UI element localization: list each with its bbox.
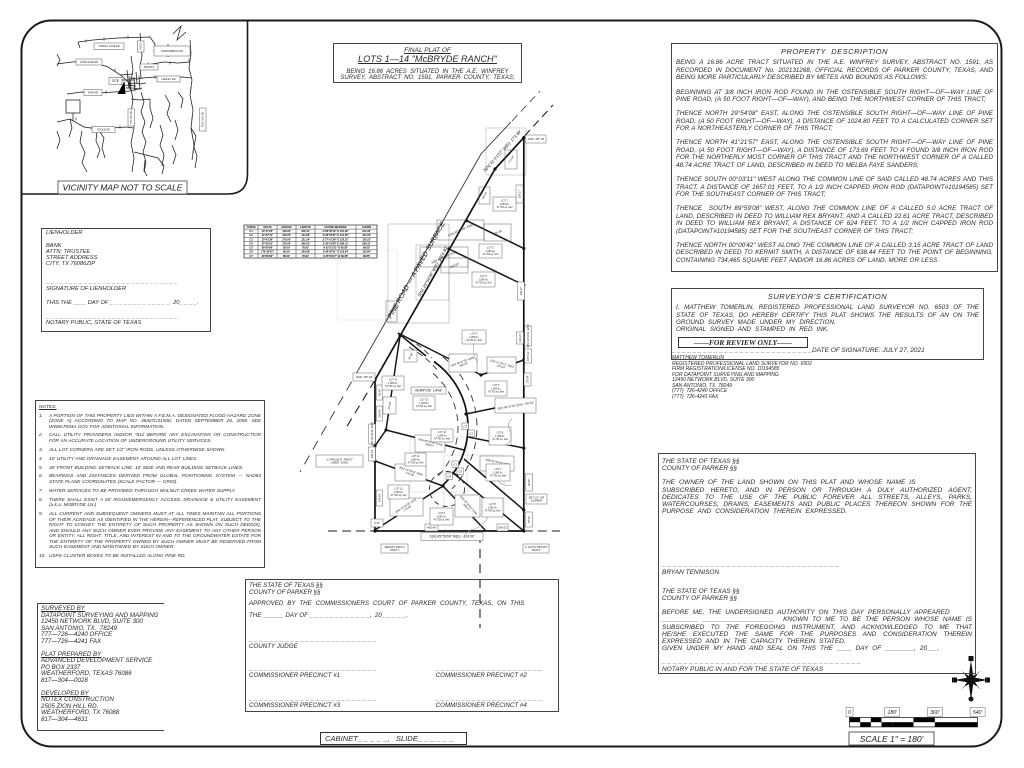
svg-text:C2: C2 bbox=[469, 431, 473, 435]
svg-text:435.48': 435.48' bbox=[427, 526, 437, 530]
svg-text:638.44': 638.44' bbox=[370, 449, 374, 458]
svg-text:FM(HWY): FM(HWY) bbox=[144, 66, 155, 69]
svg-text:47,703 sq. feet: 47,703 sq. feet bbox=[385, 385, 401, 388]
svg-text:0: 0 bbox=[848, 710, 851, 716]
svg-text:47,703 sq. feet: 47,703 sq. feet bbox=[485, 510, 501, 513]
svg-text:136.34': 136.34' bbox=[518, 333, 522, 342]
svg-text:TRACT: TRACT bbox=[390, 548, 400, 552]
svg-text:CHORD BEARING: CHORD BEARING bbox=[324, 225, 346, 229]
svg-text:21°07'31": 21°07'31" bbox=[261, 233, 274, 237]
svg-text:47,703 sq. feet: 47,703 sq. feet bbox=[466, 339, 482, 342]
svg-text:FND. 3/8" IR: FND. 3/8" IR bbox=[356, 375, 372, 379]
svg-text:540': 540' bbox=[973, 710, 983, 716]
svg-text:5.47': 5.47' bbox=[374, 521, 380, 525]
svg-text:165.17': 165.17' bbox=[517, 189, 521, 198]
svg-text:S(N) 49°47'26" E(W): S(N) 49°47'26" E(W) bbox=[447, 223, 474, 238]
svg-text:DELTA: DELTA bbox=[263, 225, 271, 229]
svg-text:26.84': 26.84' bbox=[377, 389, 381, 397]
svg-text:S(N) 89°59'08" W(E) 624.00': S(N) 89°59'08" W(E) 624.00' bbox=[430, 535, 475, 539]
svg-text:DIAMONDBACK RD: DIAMONDBACK RD bbox=[161, 50, 183, 53]
svg-text:HOGLE RD: HOGLE RD bbox=[97, 128, 110, 131]
svg-text:47,703 sq. feet: 47,703 sq. feet bbox=[416, 405, 432, 408]
svg-text:269.33': 269.33' bbox=[300, 242, 310, 246]
svg-text:S 36°14'55" E 258.31': S 36°14'55" E 258.31' bbox=[323, 242, 349, 246]
svg-text:69.55': 69.55' bbox=[363, 246, 370, 250]
svg-text:TRACT: TRACT bbox=[532, 548, 541, 552]
svg-text:47,703 sq. feet: 47,703 sq. feet bbox=[488, 391, 504, 394]
svg-text:270.00': 270.00' bbox=[281, 242, 291, 246]
svg-text:47,703 sq. feet: 47,703 sq. feet bbox=[492, 438, 508, 441]
svg-text:47,703 sq. feet: 47,703 sq. feet bbox=[434, 519, 450, 522]
svg-text:330.00': 330.00' bbox=[282, 233, 291, 237]
svg-text:134.64': 134.64' bbox=[377, 493, 381, 502]
svg-text:C3: C3 bbox=[249, 237, 253, 241]
svg-text:S 45°42'41" E 119.94': S 45°42'41" E 119.94' bbox=[323, 250, 349, 254]
svg-text:C1: C1 bbox=[249, 229, 253, 233]
svg-text:C1: C1 bbox=[453, 462, 457, 466]
svg-text:58.80': 58.80' bbox=[527, 516, 531, 523]
svg-text:TIN TOP RD: TIN TOP RD bbox=[131, 111, 133, 124]
svg-text:60.00': 60.00' bbox=[283, 250, 290, 254]
svg-text:McBRYDE LANE: McBRYDE LANE bbox=[415, 389, 443, 393]
svg-text:57°09'23": 57°09'23" bbox=[262, 242, 274, 246]
svg-text:SCALE 1" = 180': SCALE 1" = 180' bbox=[860, 734, 924, 744]
svg-text:99.98': 99.98' bbox=[527, 479, 531, 486]
svg-text:121.68': 121.68' bbox=[301, 233, 310, 237]
svg-text:C2: C2 bbox=[249, 233, 253, 237]
svg-text:VEAL HILL RD: VEAL HILL RD bbox=[201, 112, 204, 128]
svg-text:50.00': 50.00' bbox=[283, 254, 290, 258]
svg-text:226.31': 226.31' bbox=[300, 229, 310, 233]
svg-text:176°18'51": 176°18'51" bbox=[261, 250, 275, 254]
svg-text:47,703 sq. feet: 47,703 sq. feet bbox=[476, 282, 492, 285]
svg-text:C5: C5 bbox=[249, 246, 253, 250]
svg-text:50.00': 50.00' bbox=[283, 246, 290, 250]
svg-text:119.94': 119.94' bbox=[362, 250, 371, 254]
svg-text:LONE STAR RD: LONE STAR RD bbox=[80, 61, 98, 64]
svg-text:25°43'38": 25°43'38" bbox=[261, 237, 274, 241]
svg-text:69.55': 69.55' bbox=[363, 254, 370, 258]
svg-text:FND. 3/8" IR: FND. 3/8" IR bbox=[528, 137, 544, 141]
svg-text:47,703 sq. feet: 47,703 sq. feet bbox=[391, 494, 407, 497]
svg-text:76.92': 76.92' bbox=[302, 246, 309, 250]
svg-text:C6: C6 bbox=[249, 250, 253, 254]
svg-text:184.66': 184.66' bbox=[301, 250, 310, 254]
svg-text:188.52': 188.52' bbox=[498, 526, 508, 530]
svg-text:PINE RD: PINE RD bbox=[88, 91, 98, 94]
svg-text:76.92': 76.92' bbox=[302, 254, 309, 258]
svg-text:359.62': 359.62' bbox=[449, 262, 460, 270]
svg-text:10194585: 10194585 bbox=[531, 498, 543, 502]
svg-text:C3: C3 bbox=[463, 424, 467, 428]
svg-text:LEMLEY RD: LEMLEY RD bbox=[161, 78, 175, 81]
svg-text:221.90': 221.90' bbox=[361, 229, 371, 233]
svg-text:TURKEY LAKE RD: TURKEY LAKE RD bbox=[98, 45, 120, 48]
svg-text:88°08'09": 88°08'09" bbox=[262, 246, 274, 250]
svg-text:258.31': 258.31' bbox=[361, 242, 371, 246]
svg-text:S(N) 00°00'42" E(W): S(N) 00°00'42" E(W) bbox=[370, 422, 374, 446]
svg-text:81.08': 81.08' bbox=[407, 351, 414, 359]
svg-text:CHORD: CHORD bbox=[362, 225, 372, 229]
svg-text:S(N) 00°03'11" E(W): S(N) 00°03'11" E(W) bbox=[526, 324, 530, 348]
svg-text:SITE: SITE bbox=[112, 79, 120, 83]
svg-text:S 77°41'26" E 120.22': S 77°41'26" E 120.22' bbox=[323, 237, 349, 241]
svg-text:47,703 sq. feet: 47,703 sq. feet bbox=[490, 475, 506, 478]
svg-text:C5: C5 bbox=[458, 469, 462, 473]
svg-text:330.00': 330.00' bbox=[282, 229, 291, 233]
svg-text:C4: C4 bbox=[447, 474, 451, 478]
svg-text:N 39°15'51" E 121.00': N 39°15'51" E 121.00' bbox=[323, 233, 349, 237]
svg-text:39°17'25": 39°17'25" bbox=[262, 229, 274, 233]
svg-text:47,703 sq. feet: 47,703 sq. feet bbox=[483, 253, 499, 256]
svg-text:(ABST. 1591): (ABST. 1591) bbox=[331, 461, 348, 465]
svg-text:319.80': 319.80' bbox=[377, 409, 381, 418]
svg-text:47,703 sq. feet: 47,703 sq. feet bbox=[434, 438, 450, 441]
svg-text:N 69°28'19" E 221.90': N 69°28'19" E 221.90' bbox=[323, 229, 349, 233]
svg-text:180': 180' bbox=[888, 710, 898, 716]
svg-text:C4: C4 bbox=[249, 242, 253, 246]
svg-text:N 82°12'21" E 69.55': N 82°12'21" E 69.55' bbox=[323, 246, 348, 250]
svg-text:S(N) 41°21'57" W(E) 173.69': S(N) 41°21'57" W(E) 173.69' bbox=[482, 129, 522, 173]
svg-text:RADIUS: RADIUS bbox=[282, 225, 292, 229]
svg-text:FM 51: FM 51 bbox=[139, 42, 142, 49]
svg-text:121.24': 121.24' bbox=[301, 237, 310, 241]
svg-text:LENGTH: LENGTH bbox=[300, 225, 311, 229]
svg-text:S 05°53'47" W 69.55': S 05°53'47" W 69.55' bbox=[323, 254, 348, 258]
svg-text:88°08'09": 88°08'09" bbox=[262, 254, 274, 258]
svg-text:C7: C7 bbox=[249, 254, 253, 258]
svg-text:176.54': 176.54' bbox=[525, 375, 529, 384]
svg-text:1657.01': 1657.01' bbox=[526, 351, 530, 361]
svg-text:169.07': 169.07' bbox=[519, 286, 523, 295]
svg-text:47,703 sq. feet: 47,703 sq. feet bbox=[497, 206, 513, 209]
svg-text:270.00': 270.00' bbox=[281, 237, 291, 241]
svg-text:47,703 sq. feet: 47,703 sq. feet bbox=[408, 462, 424, 465]
svg-text:120.22': 120.22' bbox=[362, 237, 371, 241]
svg-text:360': 360' bbox=[930, 710, 940, 716]
svg-text:CURVE: CURVE bbox=[246, 225, 255, 229]
svg-text:VICINITY MAP NOT TO SCALE: VICINITY MAP NOT TO SCALE bbox=[63, 183, 183, 193]
svg-text:121.00': 121.00' bbox=[362, 233, 371, 237]
